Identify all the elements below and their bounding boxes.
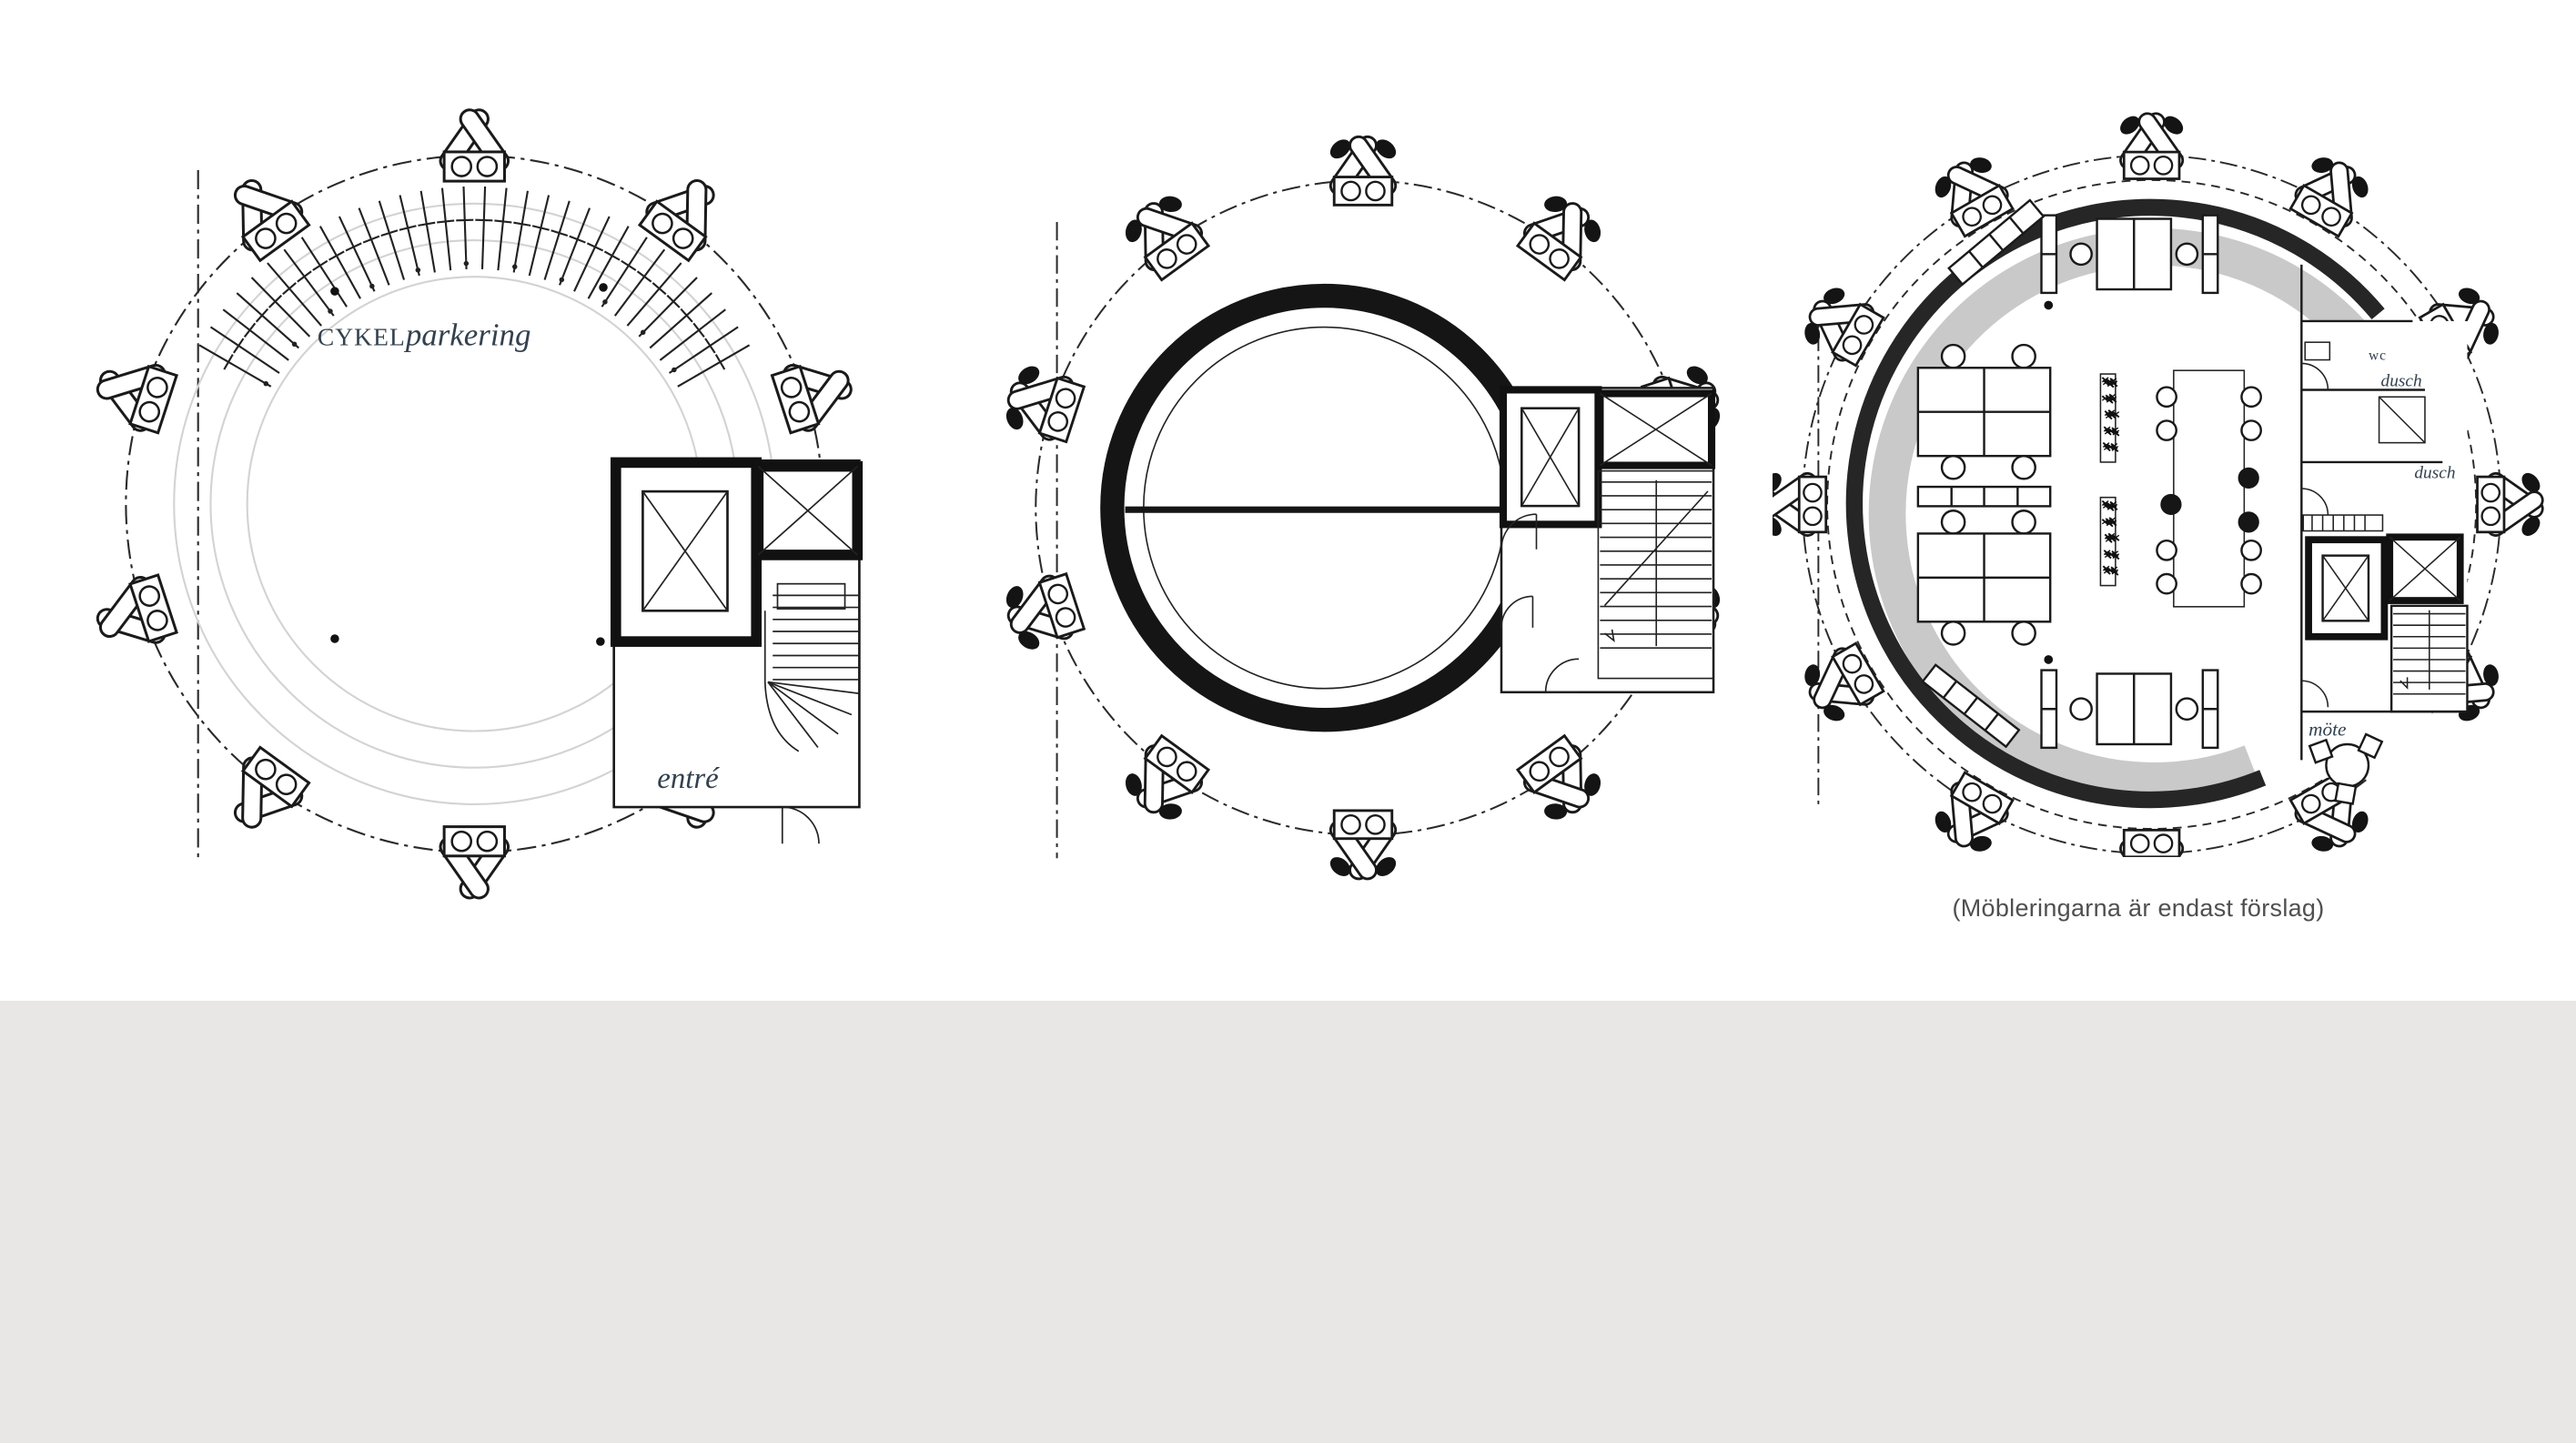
mote-label: möte	[2308, 718, 2346, 740]
wc-label: wc	[2369, 348, 2387, 364]
entrance-core: entré	[614, 460, 860, 843]
wet-rooms-and-core: wc dusch dusch möte	[2299, 265, 2467, 804]
plant-strips	[2102, 378, 2118, 575]
project-table	[2157, 370, 2260, 607]
text-panel: MARKPLANENTRÉ Cykelparkering, hiss & tra…	[0, 1001, 2576, 1443]
dusch-label: dusch	[2381, 372, 2422, 391]
office-furniture	[1918, 200, 2261, 748]
markplan-figure: CYKELparkering entré	[36, 56, 903, 923]
furnishing-disclaimer-caption: (Möbleringarna är endast förslag)	[1929, 894, 2348, 923]
plan2-figure: wc dusch dusch möte	[1773, 64, 2566, 857]
stair-elevator-core	[1501, 388, 1713, 691]
desk-cluster	[1918, 510, 2050, 644]
entre-label: entré	[657, 762, 720, 795]
brochure-page: CYKELparkering entré	[0, 0, 2576, 1443]
cykelparkering-label: CYKELparkering	[318, 317, 531, 352]
dusch-label: dusch	[2414, 463, 2455, 482]
plan1-figure	[948, 84, 1778, 913]
